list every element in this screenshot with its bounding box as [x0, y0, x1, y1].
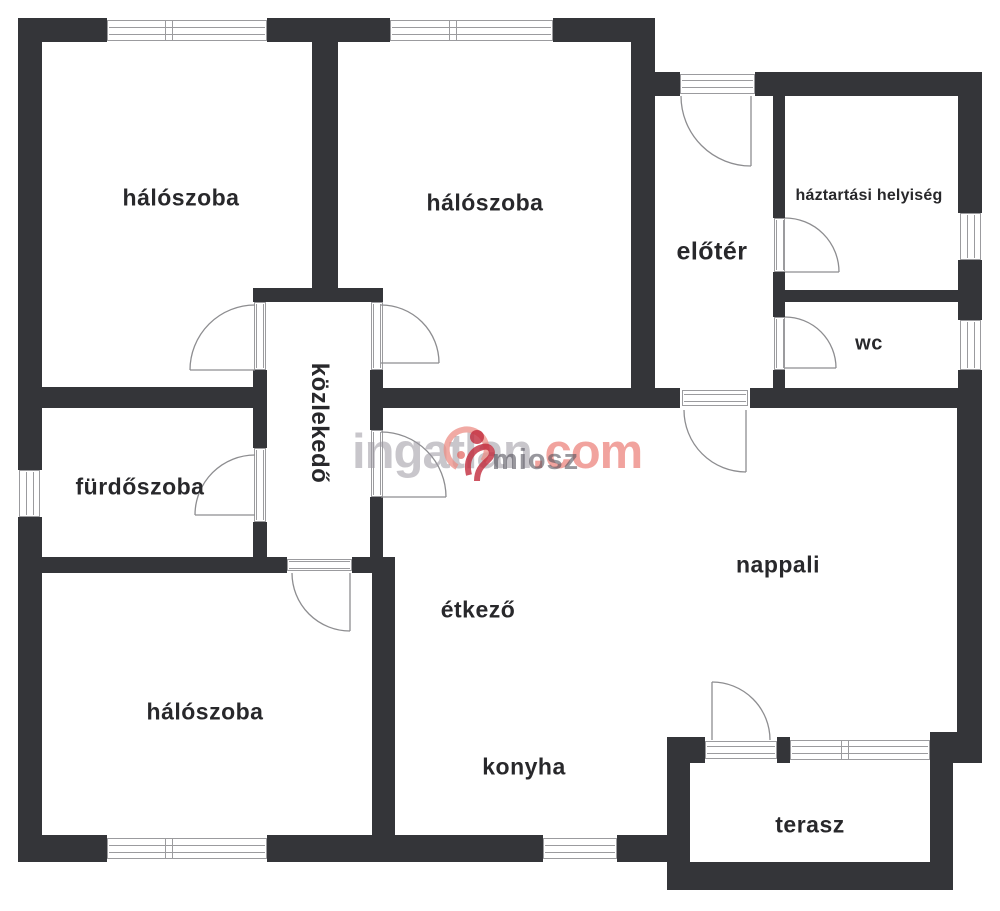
- door-living-terrace: [712, 682, 770, 740]
- room-label-bathroom: fürdőszoba: [76, 474, 205, 501]
- room-label-wc: wc: [855, 333, 883, 356]
- door-corridor-bedroom3: [292, 573, 350, 631]
- door-foyer-living: [684, 410, 746, 472]
- door-entrance: [681, 96, 751, 166]
- room-label-bedroom-top-left: hálószoba: [123, 185, 240, 212]
- room-label-dining: étkező: [441, 597, 516, 624]
- door-corridor-dining: [381, 432, 446, 497]
- room-label-foyer: előtér: [676, 238, 747, 267]
- room-label-kitchen: konyha: [482, 754, 566, 781]
- door-corridor-bedroom1: [190, 305, 255, 370]
- door-corridor-bedroom2: [381, 305, 439, 363]
- door-foyer-utility: [785, 218, 839, 272]
- room-label-living: nappali: [736, 552, 820, 579]
- floor-plan: hálószoba hálószoba előtér háztartási he…: [0, 0, 1000, 911]
- room-label-bedroom-bottom-left: hálószoba: [147, 699, 264, 726]
- watermark-logo-icon: [443, 415, 501, 489]
- room-label-corridor: közlekedő: [305, 363, 333, 484]
- door-foyer-wc: [785, 317, 836, 368]
- room-label-utility: háztartási helyiség: [796, 187, 943, 205]
- room-label-bedroom-top-middle: hálószoba: [427, 190, 544, 217]
- room-label-terrace: terasz: [775, 812, 844, 839]
